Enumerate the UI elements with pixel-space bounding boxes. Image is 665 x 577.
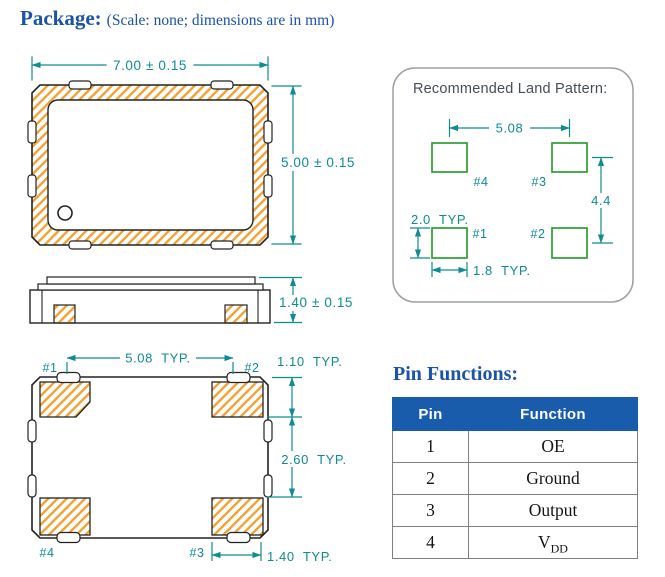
dim-label-top-width: 7.00 ± 0.15 bbox=[113, 58, 187, 73]
land-pattern-panel: Recommended Land Pattern: #4 #3 #1 #2 5.… bbox=[393, 68, 633, 302]
land-pad3-label: #3 bbox=[531, 175, 546, 189]
side-view-drawing: 1.40 ± 0.15 bbox=[30, 277, 355, 323]
land-pad-1 bbox=[432, 228, 467, 258]
dim-label-bottom-spacing: 5.08 TYP. bbox=[125, 351, 191, 366]
table-row: 4 VDD bbox=[393, 527, 638, 559]
bottom-view-drawing: #1 #2 #4 #3 5.08 TYP. 1.10 TYP. bbox=[28, 351, 348, 565]
land-pad2-label: #2 bbox=[530, 227, 545, 241]
dim-label-land-spacing: 5.08 bbox=[496, 121, 524, 136]
table-header-row: Pin Function bbox=[393, 398, 638, 431]
dim-label-bottom-pad-width: 1.40 TYP. bbox=[267, 549, 333, 564]
package-datasheet-page: Package:(Scale: none; dimensions are in … bbox=[0, 0, 665, 577]
dim-label-top-height: 5.00 ± 0.15 bbox=[281, 155, 355, 170]
bottom-pad-width-dim bbox=[212, 542, 261, 561]
dim-label-land-vertical: 4.4 bbox=[591, 193, 611, 208]
pin-function-cell: VDD bbox=[469, 527, 638, 559]
dim-label-bottom-pad-height: 1.10 TYP. bbox=[277, 354, 343, 369]
bottom-pad-2 bbox=[212, 382, 263, 417]
pin-number-cell: 4 bbox=[393, 527, 469, 559]
side-view-pad-left bbox=[54, 305, 75, 323]
side-view-pad-right bbox=[225, 305, 247, 323]
side-view-lid-upper bbox=[47, 277, 255, 284]
land-pattern-title: Recommended Land Pattern: bbox=[413, 81, 607, 97]
pin-functions-title: Pin Functions: bbox=[393, 363, 518, 386]
dim-label-bottom-pad-gap: 2.60 TYP. bbox=[281, 452, 347, 467]
land-pad4-label: #4 bbox=[473, 175, 488, 189]
vdd-subscript: DD bbox=[551, 542, 568, 556]
pin-function-cell: OE bbox=[469, 431, 638, 463]
pin-number-cell: 2 bbox=[393, 463, 469, 495]
side-view-lid-lower bbox=[38, 284, 263, 290]
pin-number-cell: 1 bbox=[393, 431, 469, 463]
dim-label-land-pad-width: 1.8 TYP. bbox=[473, 263, 531, 278]
bottom-pad4-label: #4 bbox=[39, 546, 54, 560]
pin1-indicator-dot bbox=[58, 206, 72, 220]
table-row: 3 Output bbox=[393, 495, 638, 527]
dim-label-land-pad-height: 2.0 TYP. bbox=[411, 212, 469, 227]
land-pad1-label: #1 bbox=[472, 227, 487, 241]
bottom-pad3-label: #3 bbox=[189, 546, 204, 560]
land-pad-4 bbox=[432, 143, 467, 172]
bottom-pad-3 bbox=[212, 498, 263, 535]
pin-functions-table: Pin Function 1 OE 2 Ground 3 Output 4 VD… bbox=[392, 397, 638, 559]
dim-label-side-height: 1.40 ± 0.15 bbox=[279, 295, 353, 310]
table-row: 2 Ground bbox=[393, 463, 638, 495]
land-pad-3 bbox=[552, 143, 587, 172]
top-view-drawing: 7.00 ± 0.15 5.00 ± 0.15 bbox=[28, 57, 357, 249]
bottom-pad1-label: #1 bbox=[42, 361, 57, 375]
vdd-base: V bbox=[538, 532, 551, 552]
pin-function-cell: Output bbox=[469, 495, 638, 527]
pin-column-header: Pin bbox=[393, 398, 469, 431]
pin-number-cell: 3 bbox=[393, 495, 469, 527]
bottom-pad2-label: #2 bbox=[244, 361, 259, 375]
function-column-header: Function bbox=[469, 398, 638, 431]
bottom-pad-4 bbox=[40, 498, 90, 535]
pin-function-cell: Ground bbox=[469, 463, 638, 495]
table-row: 1 OE bbox=[393, 431, 638, 463]
bottom-pad-height-dim bbox=[267, 378, 302, 418]
top-view-lid bbox=[48, 100, 253, 230]
land-pad-2 bbox=[552, 228, 587, 258]
